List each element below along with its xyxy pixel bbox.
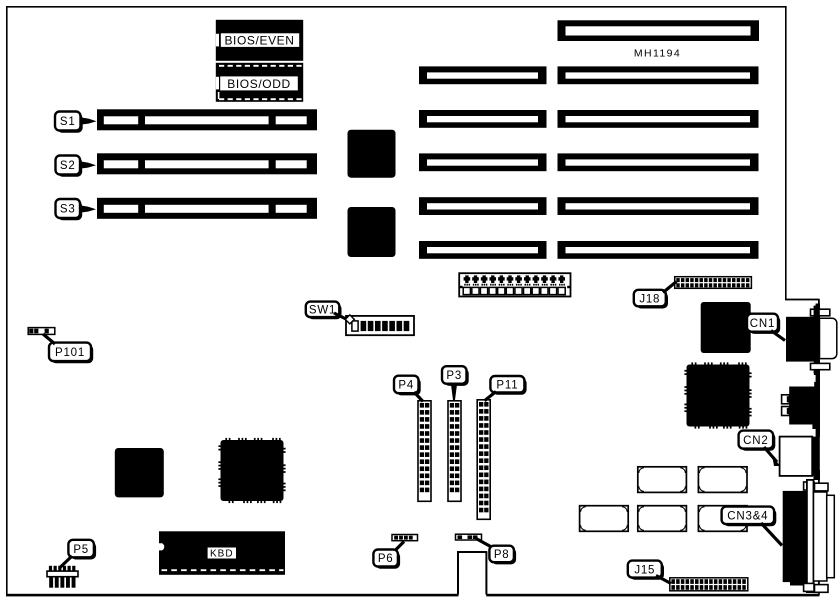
svg-text:S1: S1	[60, 116, 76, 128]
svg-text:S3: S3	[60, 204, 76, 216]
svg-text:P3: P3	[446, 370, 462, 382]
svg-text:SW1: SW1	[309, 305, 336, 317]
svg-text:CN2: CN2	[743, 435, 768, 447]
svg-text:P11: P11	[496, 379, 518, 391]
svg-text:CN3&4: CN3&4	[727, 511, 768, 523]
svg-text:S2: S2	[60, 160, 76, 172]
svg-text:P101: P101	[55, 347, 85, 359]
svg-text:CN1: CN1	[750, 318, 775, 330]
svg-text:P8: P8	[494, 549, 510, 561]
svg-text:P4: P4	[398, 380, 414, 392]
svg-text:J15: J15	[634, 564, 655, 576]
svg-text:BIOS/ODD: BIOS/ODD	[227, 77, 290, 91]
svg-text:MH1194: MH1194	[634, 48, 681, 60]
svg-text:P6: P6	[378, 553, 394, 565]
svg-text:J18: J18	[639, 293, 660, 305]
svg-text:BIOS/EVEN: BIOS/EVEN	[224, 34, 294, 48]
svg-text:P5: P5	[73, 544, 89, 556]
svg-text:KBD: KBD	[210, 549, 234, 560]
